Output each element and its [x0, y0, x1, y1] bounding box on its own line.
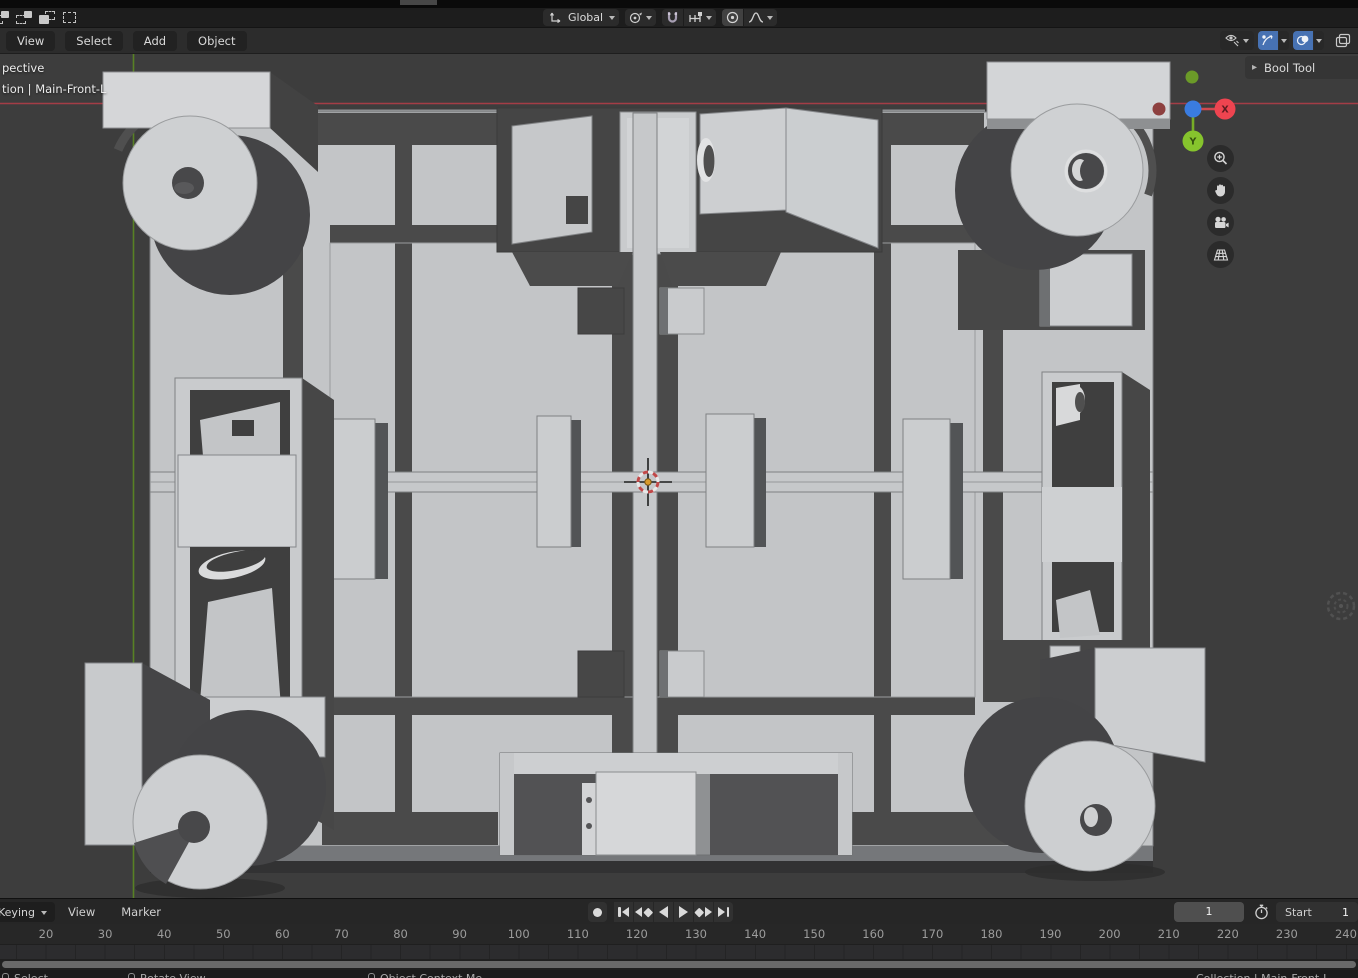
keying-label: Keying — [0, 906, 35, 919]
active-object-text: tion | Main-Front-L — [2, 79, 106, 100]
gizmo-neg-y-ball — [1186, 71, 1199, 84]
ruler-label-90: 90 — [452, 927, 467, 941]
view-name-text: pective — [2, 58, 106, 79]
status-context-menu: Object Context Me — [380, 972, 482, 978]
menu-marker[interactable]: Marker — [108, 905, 174, 919]
right-middle-assembly — [1042, 372, 1150, 660]
ruler-label-150: 150 — [803, 927, 825, 941]
chevron-down-icon — [609, 16, 615, 23]
show-gizmos-toggle[interactable] — [1258, 31, 1278, 50]
ruler-label-140: 140 — [744, 927, 766, 941]
window-top-edge — [0, 0, 1358, 8]
pan-button[interactable] — [1207, 177, 1234, 204]
camera-view-button[interactable] — [1207, 209, 1234, 236]
window-top-notch — [400, 0, 437, 5]
toggle-perspective-icon — [1213, 248, 1229, 262]
toggle-perspective-button[interactable] — [1207, 241, 1234, 268]
play-button[interactable] — [674, 902, 693, 922]
zoom-icon — [1213, 151, 1228, 166]
transform-orientation-dropdown[interactable]: Global — [543, 9, 619, 26]
tri-left-big-icon — [659, 906, 668, 918]
mouse-left-icon — [2, 973, 9, 978]
ruler-label-20: 20 — [39, 927, 54, 941]
play-reverse-button[interactable] — [654, 902, 673, 922]
ruler-label-160: 160 — [862, 927, 884, 941]
scene-model[interactable] — [0, 54, 1358, 898]
gizmo-neg-x-ball — [1153, 103, 1166, 116]
select-extend-icon[interactable] — [15, 10, 33, 25]
falloff-smooth-icon — [748, 11, 764, 24]
ruler-label-70: 70 — [334, 927, 349, 941]
menu-view[interactable]: View — [6, 31, 55, 51]
gizmos-dropdown[interactable] — [1279, 31, 1289, 50]
mouse-middle-icon — [128, 973, 135, 978]
keying-dropdown[interactable]: Keying — [0, 902, 55, 922]
proportional-editing-icon — [726, 11, 739, 24]
bar-icon — [618, 907, 621, 917]
gizmo-y-label: Y — [1189, 137, 1197, 148]
viewport-canvas[interactable]: pective tion | Main-Front-L ▸ Bool Tool … — [0, 54, 1358, 898]
start-value: 1 — [1342, 906, 1349, 919]
tri-right-icon — [705, 907, 712, 917]
ruler-label-200: 200 — [1099, 927, 1121, 941]
ruler-label-230: 230 — [1276, 927, 1298, 941]
start-frame-field[interactable]: Start 1 — [1276, 902, 1358, 922]
select-subtract-icon[interactable] — [38, 10, 56, 25]
ruler-label-110: 110 — [567, 927, 589, 941]
ruler-label-30: 30 — [98, 927, 113, 941]
status-bar: Select Rotate View Object Context Me Col… — [0, 970, 1358, 978]
ruler-label-190: 190 — [1040, 927, 1062, 941]
chevron-down-icon — [1243, 39, 1249, 46]
menu-object[interactable]: Object — [187, 31, 246, 51]
proportional-editing-toggle[interactable] — [722, 9, 743, 26]
timeline-ruler[interactable]: 2030405060708090100110120130140150160170… — [0, 924, 1358, 944]
sidebar-tab-bool-tool[interactable]: ▸ Bool Tool — [1245, 56, 1358, 79]
falloff-dropdown[interactable] — [744, 9, 777, 26]
ruler-label-210: 210 — [1158, 927, 1180, 941]
jump-to-start-button[interactable] — [614, 902, 633, 922]
chevron-down-icon — [1281, 39, 1287, 46]
zoom-button[interactable] — [1207, 145, 1234, 172]
tri-right-icon — [718, 907, 725, 917]
prev-keyframe-button[interactable] — [634, 902, 653, 922]
mouse-right-icon — [368, 973, 375, 978]
blender-window: { "tool_settings": { "select_mode_icons"… — [0, 0, 1358, 978]
snap-with-dropdown[interactable] — [684, 9, 716, 26]
menu-select[interactable]: Select — [65, 31, 122, 51]
timeline-track[interactable] — [0, 944, 1358, 959]
chevron-down-icon — [646, 16, 652, 23]
record-button[interactable] — [588, 902, 607, 922]
current-frame-field[interactable]: 1 — [1174, 902, 1244, 922]
pivot-point-dropdown[interactable] — [625, 9, 656, 26]
sidebar-tab-label: Bool Tool — [1264, 61, 1315, 75]
object-type-visibility-icon — [1225, 34, 1241, 47]
snap-increment-icon — [688, 11, 703, 24]
scrollbar-thumb[interactable] — [2, 961, 1356, 968]
snap-toggle-button[interactable] — [662, 9, 683, 26]
toggle-xray-button[interactable] — [1332, 31, 1354, 50]
ruler-label-170: 170 — [921, 927, 943, 941]
navigation-gizmo[interactable]: X Y — [1148, 60, 1244, 152]
snap-magnet-icon — [666, 11, 679, 24]
secondary-cursor — [1328, 593, 1354, 619]
ruler-label-120: 120 — [626, 927, 648, 941]
tri-right-big-icon — [679, 906, 688, 918]
ruler-label-130: 130 — [685, 927, 707, 941]
pivot-point-icon — [629, 11, 643, 24]
collapse-arrow-icon: ▸ — [1252, 62, 1257, 73]
playback-controls — [588, 902, 733, 922]
overlays-icon — [1296, 34, 1310, 47]
status-select: Select — [14, 972, 48, 978]
jump-to-end-button[interactable] — [714, 902, 733, 922]
overlays-dropdown[interactable] — [1314, 31, 1324, 50]
ruler-label-100: 100 — [508, 927, 530, 941]
orientation-value: Global — [565, 11, 606, 24]
chevron-down-icon — [706, 16, 712, 23]
select-intersect-icon[interactable] — [61, 10, 79, 25]
record-icon — [593, 908, 602, 917]
viewport-nav-buttons — [1207, 145, 1234, 268]
top-left-wheel-assembly — [103, 72, 318, 295]
viewport-overlay-text: pective tion | Main-Front-L — [2, 58, 106, 100]
ruler-label-220: 220 — [1217, 927, 1239, 941]
transform-orientation-icon — [549, 11, 562, 24]
select-new-icon[interactable] — [0, 10, 10, 25]
viewport-header: ViewSelectAddObject — [0, 28, 1358, 54]
menu-add[interactable]: Add — [133, 31, 177, 51]
start-label: Start — [1285, 906, 1312, 919]
chevron-down-icon — [41, 911, 47, 918]
menu-view[interactable]: View — [55, 905, 108, 919]
chevron-down-icon — [1316, 39, 1322, 46]
diamond-icon — [695, 907, 704, 916]
ruler-label-40: 40 — [157, 927, 172, 941]
select-mode-group — [0, 10, 79, 25]
tri-left-icon — [635, 907, 642, 917]
next-keyframe-button[interactable] — [694, 902, 713, 922]
pan-hand-icon — [1213, 183, 1228, 198]
diamond-icon — [643, 907, 652, 916]
timeline-scrollbar[interactable] — [0, 959, 1358, 970]
gizmo-z-ball — [1185, 101, 1202, 118]
timeline-header: Keying View Marker 1 Start 1 — [0, 898, 1358, 924]
bar-icon — [727, 907, 730, 917]
camera-view-icon — [1213, 216, 1229, 230]
ruler-label-50: 50 — [216, 927, 231, 941]
tool-settings-bar: Global — [0, 8, 1358, 28]
chevron-down-icon — [767, 16, 773, 23]
gizmo-x-label: X — [1221, 105, 1229, 116]
gizmos-icon — [1261, 34, 1275, 47]
status-rotate-view: Rotate View — [140, 972, 206, 978]
ruler-label-180: 180 — [980, 927, 1002, 941]
status-collection: Collection | Main-Front-L — [1196, 972, 1329, 978]
xray-icon — [1335, 33, 1351, 48]
ruler-label-240: 240 — [1335, 927, 1357, 941]
use-preview-range-button[interactable] — [1250, 902, 1272, 922]
ruler-label-60: 60 — [275, 927, 290, 941]
bottom-center-assembly — [500, 753, 852, 855]
tri-left-icon — [622, 907, 629, 917]
ruler-label-80: 80 — [393, 927, 408, 941]
object-type-visibility-dropdown[interactable] — [1220, 31, 1254, 50]
show-overlays-toggle[interactable] — [1293, 31, 1313, 50]
preview-range-icon — [1254, 904, 1269, 920]
